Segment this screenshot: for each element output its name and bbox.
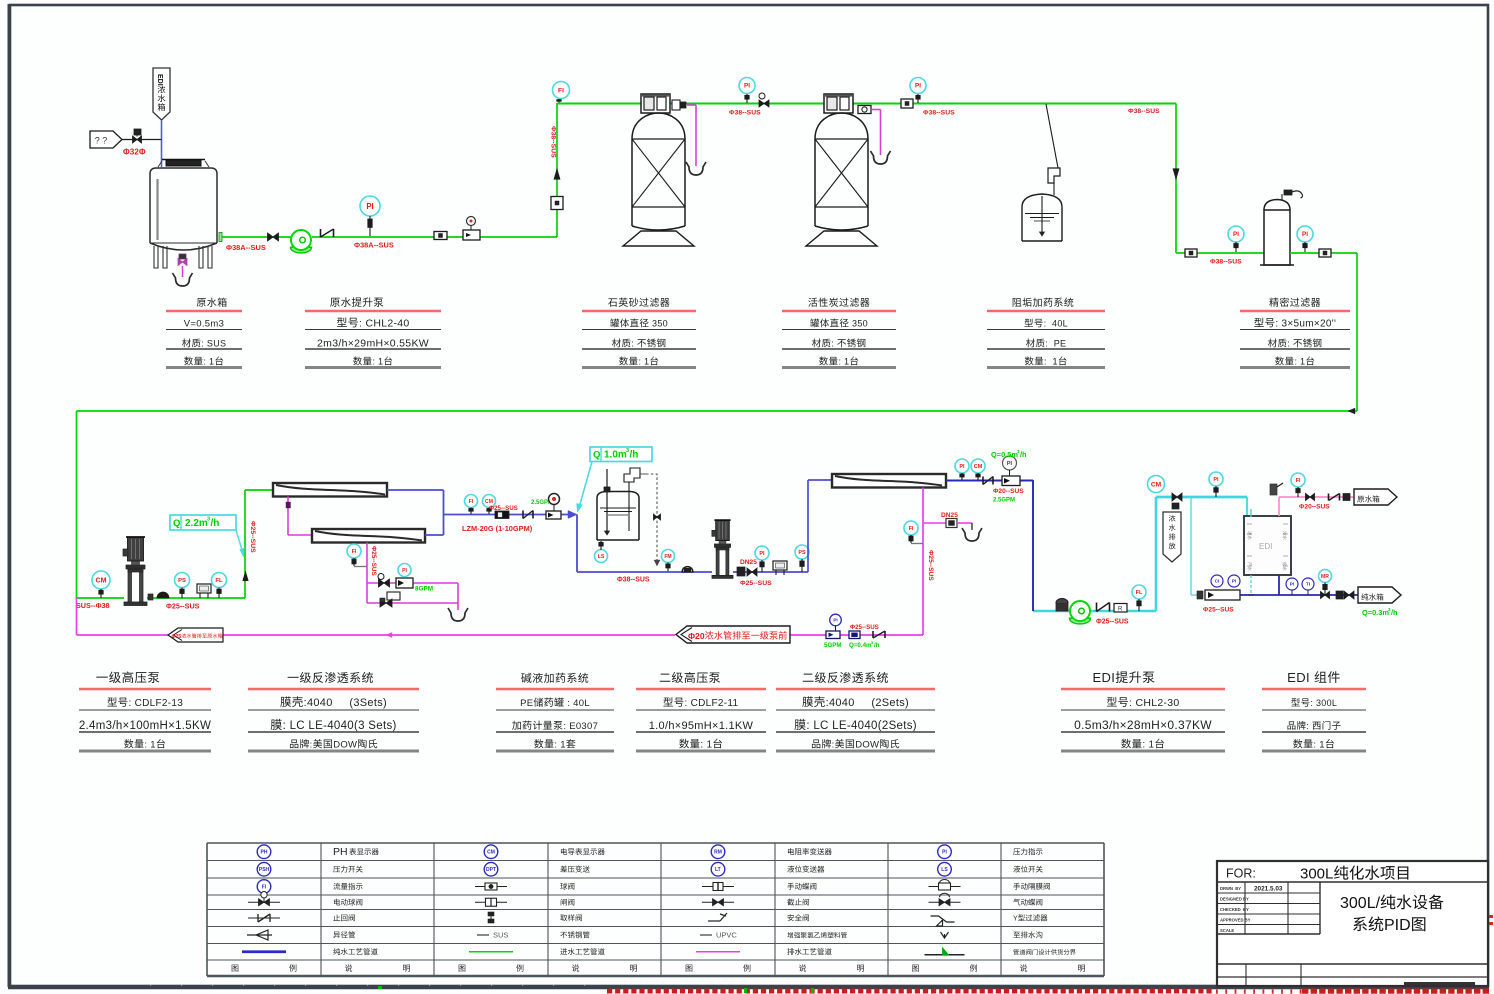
svg-text:APPROVED BY: APPROVED BY: [1220, 918, 1251, 923]
svg-text:SCALE: SCALE: [1220, 928, 1234, 933]
svg-text:FL: FL: [1136, 590, 1143, 596]
svg-text:: 1: : 1: [1294, 357, 1305, 367]
svg-text:: CDLF2-11: : CDLF2-11: [684, 698, 738, 709]
svg-text:300L: 300L: [1300, 866, 1333, 883]
svg-text:V=0.5m3: V=0.5m3: [184, 319, 224, 330]
svg-text:Φ20: Φ20: [688, 631, 705, 641]
svg-text:R: R: [1118, 607, 1123, 613]
svg-text:PS: PS: [178, 578, 186, 584]
svg-text:PS: PS: [798, 550, 806, 556]
svg-text:Φ20--SUS: Φ20--SUS: [1299, 504, 1330, 511]
svg-text:1.0/h×95mH×1.1KW: 1.0/h×95mH×1.1KW: [649, 720, 754, 732]
svg-text:: LC LE-4040(2Sets): : LC LE-4040(2Sets): [806, 720, 917, 732]
svg-text:: 1: : 1: [554, 740, 565, 751]
svg-text:8GPM: 8GPM: [415, 586, 433, 593]
svg-text:: 1: : 1: [1142, 740, 1154, 751]
svg-text:Q=0.4m: Q=0.4m: [849, 642, 872, 649]
svg-text:Φ38A--SUS: Φ38A--SUS: [354, 241, 394, 250]
svg-text:/h: /h: [874, 642, 880, 649]
svg-text::: :: [832, 740, 835, 751]
svg-text:Φ38--SUS: Φ38--SUS: [923, 110, 955, 117]
svg-text:CM: CM: [487, 850, 495, 856]
svg-text:PI: PI: [1007, 461, 1013, 467]
svg-text::: :: [1306, 721, 1312, 731]
svg-text:RM: RM: [714, 850, 722, 856]
svg-text:DOW: DOW: [855, 740, 879, 751]
svg-text:: PE: : PE: [1045, 339, 1066, 349]
svg-text:CHECKED BY: CHECKED BY: [1220, 907, 1249, 912]
svg-text:350: 350: [849, 319, 868, 329]
svg-text:DESIGNED BY: DESIGNED BY: [1220, 897, 1249, 902]
svg-text:EDI: EDI: [156, 74, 163, 86]
svg-text:PI: PI: [915, 83, 921, 90]
svg-text:LZM-20G (1-10GPM): LZM-20G (1-10GPM): [462, 524, 533, 533]
svg-text:PI: PI: [833, 618, 837, 623]
svg-text:Φ25--SUS: Φ25--SUS: [166, 602, 200, 611]
svg-text:PSH: PSH: [259, 867, 270, 873]
svg-text::: :: [310, 740, 313, 751]
svg-text:Φ25--SUS: Φ25--SUS: [370, 546, 377, 576]
svg-text:FOR:: FOR:: [1226, 867, 1256, 881]
svg-text:Q=0.5m: Q=0.5m: [991, 450, 1018, 459]
svg-text:2m3/h×29mH×0.55KW: 2m3/h×29mH×0.55KW: [317, 338, 429, 350]
svg-text:EDI: EDI: [1259, 542, 1272, 551]
svg-text:FM: FM: [664, 554, 671, 560]
svg-text:FI: FI: [262, 884, 267, 890]
svg-text:300L/: 300L/: [1340, 895, 1381, 912]
svg-text:0.5m3/h×28mH×0.37KW: 0.5m3/h×28mH×0.37KW: [1074, 718, 1212, 732]
svg-text:FI: FI: [1296, 478, 1301, 484]
svg-text:2.5GPM: 2.5GPM: [993, 498, 1015, 504]
svg-text:PI: PI: [402, 568, 407, 574]
svg-text:SUS--Φ38: SUS--Φ38: [76, 601, 109, 610]
svg-text:2021.5.03: 2021.5.03: [1254, 886, 1283, 893]
svg-text:FI: FI: [909, 526, 914, 532]
svg-text:: CHL2-40: : CHL2-40: [359, 318, 410, 330]
svg-text:Φ25--SUS: Φ25--SUS: [1096, 619, 1129, 626]
svg-text:PI: PI: [1233, 231, 1239, 238]
svg-text:/h: /h: [630, 450, 639, 461]
svg-text:: LC LE-4040(3 Sets): : LC LE-4040(3 Sets): [283, 720, 397, 732]
svg-text:TI: TI: [1306, 582, 1310, 587]
svg-text:Φ25--SUS: Φ25--SUS: [249, 521, 256, 553]
svg-text:Φ25--SUS: Φ25--SUS: [1203, 607, 1234, 614]
svg-text:? ?: ? ?: [95, 136, 108, 146]
svg-text:Φ25--SUS: Φ25--SUS: [850, 624, 879, 631]
svg-text:: E0307: : E0307: [563, 721, 598, 732]
svg-text:: 1: : 1: [700, 740, 712, 751]
svg-text:Y: Y: [1013, 916, 1018, 923]
svg-text:: 1: : 1: [838, 357, 849, 367]
svg-text:: 3×5um×20'': : 3×5um×20'': [1275, 319, 1336, 330]
svg-text:DOW: DOW: [333, 740, 357, 751]
svg-text:Φ38--SUS: Φ38--SUS: [617, 577, 650, 584]
svg-text:Q: Q: [173, 518, 180, 529]
svg-text:: 300L: : 300L: [1310, 698, 1337, 708]
svg-text:Φ20--SUS: Φ20--SUS: [993, 488, 1024, 495]
svg-text:CM: CM: [485, 499, 493, 505]
svg-text:5GPM: 5GPM: [824, 642, 842, 649]
svg-text:FI: FI: [352, 549, 357, 555]
svg-text:FI: FI: [558, 87, 564, 94]
svg-text:PI: PI: [959, 464, 965, 470]
svg-text:PE: PE: [520, 698, 533, 709]
svg-text::4040 (3Sets): :4040 (3Sets): [304, 697, 387, 709]
svg-text:PI: PI: [942, 850, 947, 856]
svg-text:Φ25--SUS: Φ25--SUS: [489, 505, 518, 512]
svg-text:DPT: DPT: [486, 867, 496, 873]
svg-text:DN25: DN25: [740, 559, 757, 566]
svg-text::: :: [631, 339, 637, 349]
svg-text::: :: [1287, 339, 1293, 349]
svg-text:PH: PH: [261, 850, 268, 856]
svg-text:PI: PI: [744, 83, 750, 90]
svg-text:: CDLF2-13: : CDLF2-13: [128, 698, 183, 709]
svg-text:: 1: : 1: [1313, 740, 1324, 751]
svg-text:Φ25--SUS: Φ25--SUS: [740, 580, 772, 587]
svg-text:/h: /h: [1391, 608, 1398, 617]
svg-text:FL: FL: [215, 578, 223, 584]
svg-text:CM: CM: [96, 578, 107, 585]
svg-text:Q: Q: [593, 450, 600, 461]
svg-text:: 40L: : 40L: [1044, 319, 1068, 329]
svg-text:2.4m3/h×100mH×1.5KW: 2.4m3/h×100mH×1.5KW: [79, 720, 211, 732]
svg-text:350: 350: [649, 319, 668, 329]
svg-text:: CHL2-30: : CHL2-30: [1129, 697, 1180, 709]
svg-text:Φ38A--SUS: Φ38A--SUS: [226, 243, 266, 252]
svg-text:: SUS: : SUS: [201, 339, 226, 349]
svg-text:PI: PI: [366, 202, 373, 211]
svg-text:PID: PID: [1384, 917, 1411, 934]
svg-text:/h: /h: [1020, 450, 1027, 459]
svg-text:Φ25: Φ25: [172, 634, 182, 640]
svg-text:PI: PI: [1213, 477, 1219, 483]
svg-text:PH: PH: [333, 846, 348, 858]
svg-text:Φ38--SUS: Φ38--SUS: [729, 110, 761, 117]
svg-text:Φ32Φ: Φ32Φ: [123, 148, 146, 157]
svg-text:EDI: EDI: [1287, 670, 1314, 685]
svg-text:/h: /h: [211, 518, 220, 529]
svg-text:DRWN BY: DRWN BY: [1220, 886, 1241, 891]
svg-text:PI: PI: [1232, 579, 1236, 584]
svg-text:2.2m: 2.2m: [185, 518, 208, 529]
svg-text:: 1: : 1: [203, 357, 214, 367]
svg-text:DN25: DN25: [941, 512, 958, 519]
svg-text:LS: LS: [598, 554, 605, 560]
svg-text:CI: CI: [1215, 579, 1220, 584]
svg-text::: :: [831, 339, 837, 349]
svg-text:1.0m: 1.0m: [604, 450, 627, 461]
svg-text:SUS: SUS: [493, 931, 508, 940]
svg-text:CM: CM: [1151, 481, 1162, 488]
svg-text:LT: LT: [715, 867, 721, 873]
svg-text:FI: FI: [469, 499, 474, 505]
svg-text:Q=0.3m: Q=0.3m: [1362, 608, 1389, 617]
svg-text:MR: MR: [1321, 574, 1329, 580]
svg-text:CM: CM: [974, 464, 983, 470]
svg-text:: 1: : 1: [1044, 357, 1058, 367]
svg-text:LS: LS: [941, 867, 948, 873]
svg-text:Φ38--SUS: Φ38--SUS: [1128, 108, 1160, 115]
svg-text:Φ38--SUS: Φ38--SUS: [550, 126, 557, 158]
svg-text:EDI: EDI: [1092, 670, 1115, 685]
svg-text:Φ38--SUS: Φ38--SUS: [1210, 259, 1242, 266]
svg-text:Φ25--SUS: Φ25--SUS: [927, 550, 934, 581]
svg-text:UPVC: UPVC: [716, 931, 737, 940]
svg-text:PI: PI: [759, 551, 765, 557]
svg-text:: 1: : 1: [144, 740, 155, 751]
svg-text::4040 (2Sets): :4040 (2Sets): [826, 697, 909, 709]
svg-text:PI: PI: [1290, 582, 1294, 587]
svg-text:: 1: : 1: [372, 357, 383, 367]
svg-text:: 1: : 1: [638, 357, 649, 367]
svg-text:: 40L: : 40L: [564, 698, 590, 709]
svg-text:PI: PI: [1302, 231, 1308, 238]
